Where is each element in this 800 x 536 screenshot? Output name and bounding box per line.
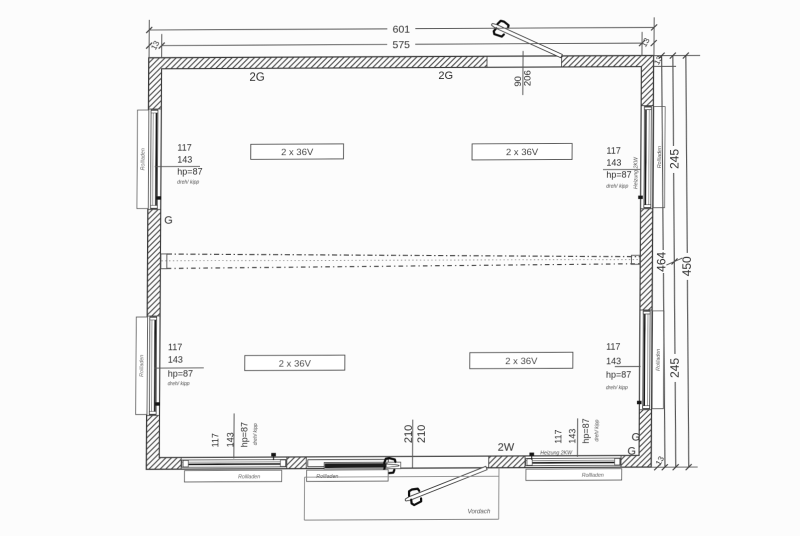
- svg-text:601: 601: [393, 24, 411, 36]
- svg-text:117: 117: [606, 146, 620, 156]
- svg-text:117: 117: [210, 433, 220, 447]
- svg-text:Heizung 2KW: Heizung 2KW: [633, 156, 639, 189]
- svg-text:hp=87: hp=87: [168, 369, 193, 379]
- svg-text:Rollladen: Rollladen: [238, 474, 260, 480]
- svg-text:450: 450: [680, 256, 694, 276]
- svg-text:2 x 36V: 2 x 36V: [279, 358, 312, 369]
- svg-text:117: 117: [606, 341, 620, 351]
- svg-text:Rollladen: Rollladen: [582, 473, 604, 479]
- svg-text:117: 117: [553, 429, 563, 443]
- svg-text:dreh/ kipp: dreh/ kipp: [177, 179, 199, 185]
- svg-text:2G: 2G: [438, 70, 453, 82]
- svg-text:206: 206: [523, 70, 534, 86]
- svg-text:2 x 36V: 2 x 36V: [506, 147, 539, 158]
- svg-text:117: 117: [168, 342, 182, 352]
- svg-text:G: G: [627, 446, 636, 458]
- svg-text:Rollladen: Rollladen: [141, 148, 147, 170]
- svg-text:143: 143: [177, 154, 192, 164]
- svg-text:hp=87: hp=87: [239, 422, 249, 447]
- svg-text:143: 143: [606, 158, 621, 168]
- svg-text:245: 245: [668, 358, 682, 378]
- svg-text:143: 143: [567, 429, 577, 444]
- svg-text:dreh/ kipp: dreh/ kipp: [594, 419, 600, 441]
- svg-text:Rollladen: Rollladen: [139, 355, 145, 377]
- svg-text:hp=87: hp=87: [606, 369, 631, 379]
- svg-text:hp=87: hp=87: [606, 170, 631, 180]
- svg-text:hp=87: hp=87: [177, 166, 202, 176]
- svg-text:245: 245: [667, 149, 681, 169]
- svg-text:dreh/ kipp: dreh/ kipp: [168, 381, 190, 387]
- svg-text:hp=87: hp=87: [581, 418, 591, 443]
- svg-text:575: 575: [392, 39, 410, 51]
- svg-text:2G: 2G: [249, 72, 264, 84]
- svg-text:2W: 2W: [498, 442, 515, 454]
- svg-text:Heizung 2KW: Heizung 2KW: [540, 451, 573, 457]
- svg-text:dreh/ kipp: dreh/ kipp: [606, 385, 628, 391]
- svg-text:G: G: [164, 215, 173, 227]
- svg-text:117: 117: [177, 142, 191, 152]
- svg-text:210: 210: [416, 425, 428, 443]
- svg-text:2 x 36V: 2 x 36V: [505, 356, 538, 367]
- svg-text:Rollladen: Rollladen: [656, 349, 662, 371]
- svg-text:G: G: [631, 432, 640, 444]
- svg-text:dreh/ kipp: dreh/ kipp: [606, 184, 628, 190]
- svg-text:143: 143: [606, 356, 621, 366]
- svg-text:143: 143: [168, 355, 183, 365]
- svg-text:464: 464: [654, 251, 668, 271]
- svg-text:Vordach: Vordach: [467, 508, 490, 515]
- svg-text:dreh/ kipp: dreh/ kipp: [253, 423, 259, 445]
- svg-text:2 x 36V: 2 x 36V: [281, 147, 314, 158]
